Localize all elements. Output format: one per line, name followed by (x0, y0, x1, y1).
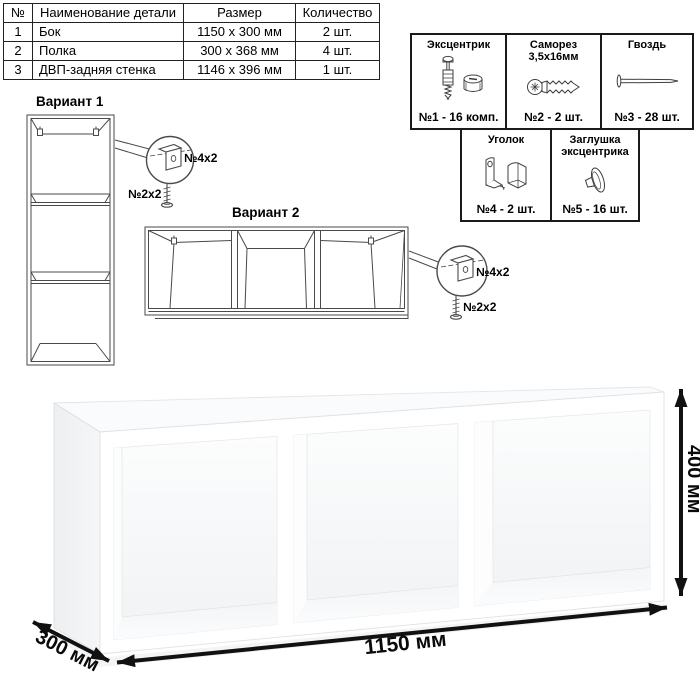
variant2-callout-screw-icon (451, 296, 462, 320)
shelf-3d-drawing (54, 387, 667, 667)
variant1-title: Вариант 1 (36, 94, 103, 109)
variant1-callout-screw-icon (162, 184, 173, 208)
variant1-shelf-drawing (27, 115, 114, 365)
variant2-bracket-label: №4х2 (476, 265, 509, 279)
variant1-screw-label: №2х2 (128, 187, 161, 201)
dimension-height-label: 400 мм (682, 445, 700, 529)
variant2-title: Вариант 2 (232, 205, 299, 220)
variant2-shelf-drawing (145, 227, 408, 319)
variant2-screw-label: №2х2 (463, 300, 496, 314)
furniture-assembly-sheet: № Наименование детали Размер Количество … (0, 0, 700, 690)
drawing-overlay (0, 0, 700, 690)
variant1-bracket-label: №4х2 (184, 151, 217, 165)
